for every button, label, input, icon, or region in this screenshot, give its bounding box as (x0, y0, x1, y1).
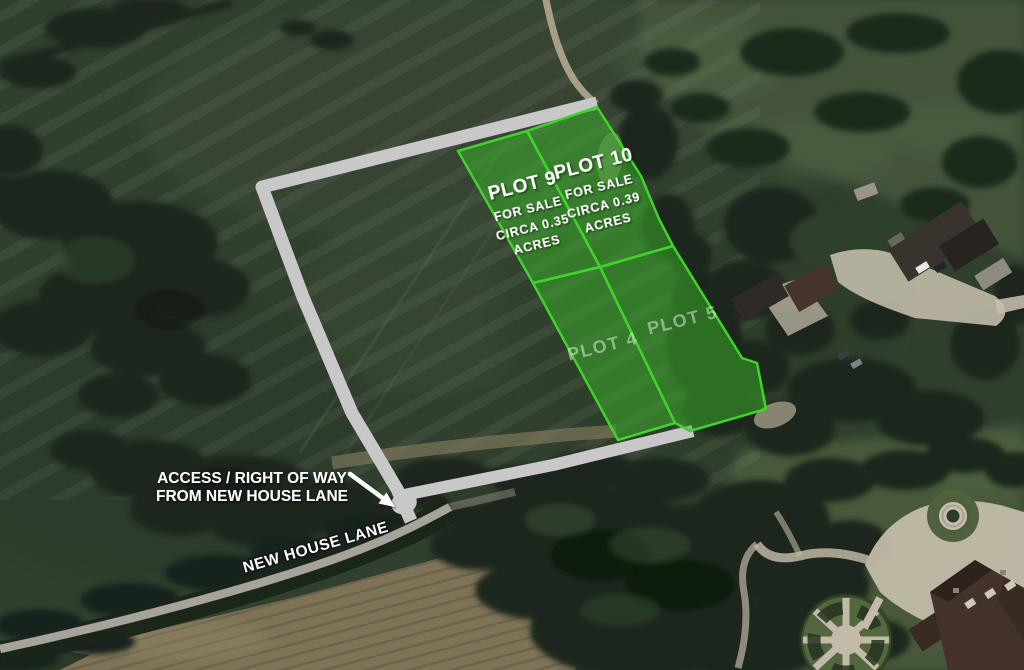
satellite-canvas: PLOT 9 FOR SALE CIRCA 0.35 ACRES PLOT 10… (0, 0, 1024, 670)
parterre-garden (801, 595, 891, 670)
aerial-plot-map: PLOT 9 FOR SALE CIRCA 0.35 ACRES PLOT 10… (0, 0, 1024, 670)
access-label-line2: FROM NEW HOUSE LANE (156, 488, 348, 505)
access-label-line1: ACCESS / RIGHT OF WAY (157, 470, 347, 487)
